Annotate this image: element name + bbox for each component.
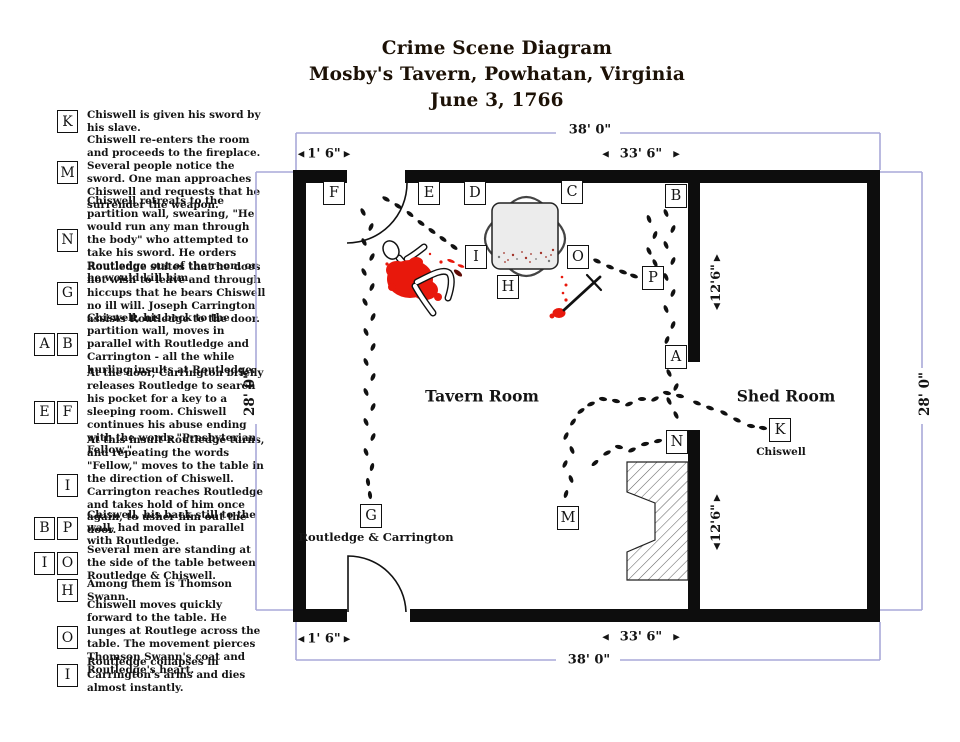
blood-speckle xyxy=(545,256,547,258)
footprint xyxy=(672,410,679,419)
dim-top-left-offset: ◀ 1' 6" ▶ xyxy=(295,147,353,162)
chair-right xyxy=(558,223,565,254)
footprint xyxy=(369,342,376,351)
footprint xyxy=(563,489,569,498)
dim-bottom-width: 38' 0" xyxy=(568,653,610,668)
marker-G: G xyxy=(360,504,382,528)
footprint xyxy=(369,463,375,472)
footprint xyxy=(719,409,728,416)
dim-bottom-main: ◀ 33' 6" ▶ xyxy=(591,630,691,645)
blood-speckle xyxy=(504,261,506,263)
blood-speckle xyxy=(525,257,527,259)
footprint xyxy=(428,227,437,235)
blood-speckle xyxy=(507,259,509,261)
dim-left-height: 28' 0" xyxy=(242,372,258,416)
footprint xyxy=(641,441,650,447)
left-arrow-icon: ◀ xyxy=(602,632,609,642)
right-arrow-icon: ▶ xyxy=(344,634,351,644)
dim-top-main: ◀ 33' 6" ▶ xyxy=(591,147,691,162)
left-arrow-icon: ◀ xyxy=(602,149,609,159)
blood-speckle xyxy=(530,253,532,255)
footprint xyxy=(627,446,636,453)
footprint xyxy=(638,397,646,401)
footprint xyxy=(561,459,568,468)
footprint xyxy=(361,297,368,306)
chiswell-caption: Chiswell xyxy=(756,446,806,458)
marker-K: K xyxy=(769,418,791,442)
bottom-door-arc xyxy=(348,556,406,612)
footprint xyxy=(663,304,670,313)
footprint xyxy=(652,230,659,239)
marker-C: C xyxy=(561,180,583,204)
footprint xyxy=(367,222,374,231)
footprint xyxy=(417,219,426,227)
tavern-room-label: Tavern Room xyxy=(425,387,539,406)
table xyxy=(492,203,558,269)
dagger xyxy=(550,275,602,319)
top-door-arc xyxy=(347,183,407,243)
footprint xyxy=(362,357,369,366)
footprint xyxy=(670,320,677,329)
blood-speckle xyxy=(498,256,500,258)
marker-N: N xyxy=(666,430,688,454)
down-arrow-icon: ▼ xyxy=(714,543,721,552)
footprint xyxy=(362,387,369,396)
footprint xyxy=(663,240,670,249)
dim-bottom-left-offset: ◀ 1' 6" ▶ xyxy=(295,632,353,647)
footprint xyxy=(676,393,685,399)
footprint xyxy=(368,252,375,261)
footprint xyxy=(439,235,448,243)
footprint xyxy=(624,401,633,408)
blood-speckle xyxy=(512,254,514,256)
dim-top-width: 38' 0" xyxy=(569,123,611,138)
blood-speckle xyxy=(516,258,518,260)
footprint xyxy=(576,407,585,415)
footprint xyxy=(359,207,366,216)
blood-speckle xyxy=(548,260,550,262)
footprint xyxy=(381,195,390,203)
down-arrow-icon: ▼ xyxy=(714,303,721,312)
marker-F: F xyxy=(323,181,345,205)
marker-M: M xyxy=(557,506,579,530)
marker-E: E xyxy=(418,181,440,205)
footprint xyxy=(599,396,608,401)
footprint xyxy=(646,214,653,223)
footprint xyxy=(367,491,372,500)
up-arrow-icon: ▲ xyxy=(714,494,721,503)
marker-A: A xyxy=(665,345,687,369)
right-arrow-icon: ▶ xyxy=(673,632,680,642)
footprint xyxy=(670,224,677,233)
footprint xyxy=(369,312,376,321)
blood-speckle xyxy=(535,258,537,260)
floor-plan-svg xyxy=(0,0,960,742)
blood-speckle xyxy=(521,251,523,253)
dim-shed-upper: ▲ 12'6" ▼ xyxy=(698,254,736,312)
footprint xyxy=(665,396,672,405)
footprint xyxy=(369,372,376,381)
footprint xyxy=(369,432,376,441)
marker-D: D xyxy=(464,181,486,205)
marker-P: P xyxy=(642,266,664,290)
routledge-carrington-caption: Routledge & Carrington xyxy=(298,530,453,544)
footprint xyxy=(568,474,575,483)
dim-right-height: 28' 0" xyxy=(917,372,933,416)
footprint xyxy=(615,444,624,450)
marker-H: H xyxy=(497,275,519,299)
footprint xyxy=(369,402,376,411)
dim-shed-lower: ▲ 12'6" ▼ xyxy=(698,494,736,552)
footprint-trails xyxy=(359,195,767,499)
blood-speckle xyxy=(552,249,554,251)
footprint xyxy=(663,208,670,217)
marker-B: B xyxy=(665,184,687,208)
footprint xyxy=(368,282,375,291)
footprint xyxy=(362,417,369,426)
footprint xyxy=(362,327,369,336)
footprint xyxy=(602,449,611,456)
footprint xyxy=(569,418,577,427)
footprint xyxy=(586,401,595,408)
footprint xyxy=(650,395,659,402)
shed-room-label: Shed Room xyxy=(737,387,836,406)
right-arrow-icon: ▶ xyxy=(344,149,351,159)
footprint xyxy=(663,390,672,396)
blood-speckle xyxy=(503,252,505,254)
footprint xyxy=(450,243,459,251)
marker-I: I xyxy=(465,245,487,269)
up-arrow-icon: ▲ xyxy=(714,254,721,263)
left-arrow-icon: ◀ xyxy=(298,149,305,159)
fireplace xyxy=(627,462,688,580)
footprint xyxy=(670,288,677,297)
footprint xyxy=(759,425,768,430)
footprint xyxy=(645,246,652,255)
blood-speckle xyxy=(529,261,531,263)
footprint xyxy=(732,417,741,424)
right-arrow-icon: ▶ xyxy=(673,149,680,159)
crime-scene-diagram-page: Crime Scene Diagram Mosby's Tavern, Powh… xyxy=(0,0,960,742)
footprint xyxy=(365,478,370,487)
marker-O: O xyxy=(567,245,589,269)
footprint xyxy=(692,400,701,407)
footprint xyxy=(591,459,600,467)
footprint xyxy=(363,447,370,456)
footprint xyxy=(562,431,569,440)
footprint xyxy=(664,335,671,344)
blood-speckle xyxy=(540,252,542,254)
footprint xyxy=(629,273,638,280)
footprint xyxy=(747,423,756,428)
footprint xyxy=(665,368,672,377)
footprint xyxy=(360,267,367,276)
footprint xyxy=(672,382,679,391)
table-and-chairs xyxy=(485,197,565,276)
blood-speckle xyxy=(550,254,552,256)
footprint xyxy=(406,210,415,218)
footprint xyxy=(705,405,714,412)
footprint xyxy=(592,257,601,264)
left-arrow-icon: ◀ xyxy=(298,634,305,644)
victim-body xyxy=(380,238,465,313)
footprint xyxy=(569,445,576,454)
footprint xyxy=(654,438,663,444)
footprint xyxy=(670,256,677,265)
footprint xyxy=(618,269,627,276)
footprint xyxy=(605,264,614,271)
footprint xyxy=(612,398,621,404)
